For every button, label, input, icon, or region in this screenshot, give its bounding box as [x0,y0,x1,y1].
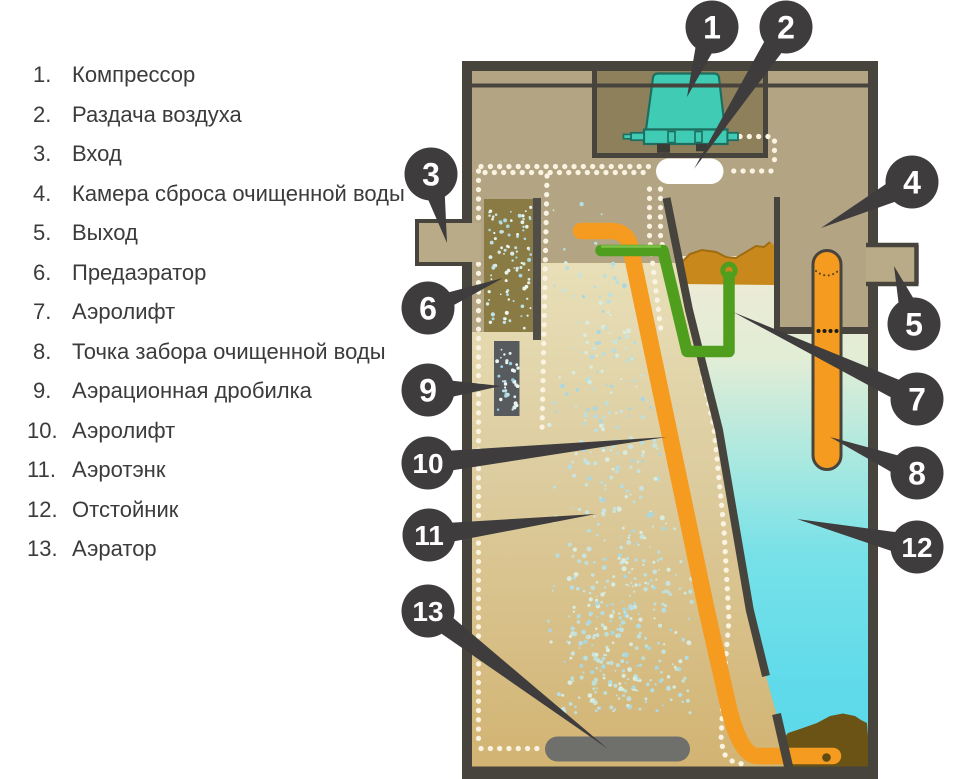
svg-text:12: 12 [901,532,932,563]
svg-text:3: 3 [422,157,440,193]
svg-text:11: 11 [414,520,444,551]
svg-text:8: 8 [908,456,926,492]
svg-text:6: 6 [419,291,437,327]
svg-text:10: 10 [412,448,443,479]
svg-text:13: 13 [412,596,443,627]
svg-text:4: 4 [903,165,921,201]
svg-text:9: 9 [419,373,437,409]
svg-text:5: 5 [905,307,923,343]
svg-text:2: 2 [777,10,795,46]
svg-text:7: 7 [908,382,926,418]
svg-text:1: 1 [703,10,721,46]
